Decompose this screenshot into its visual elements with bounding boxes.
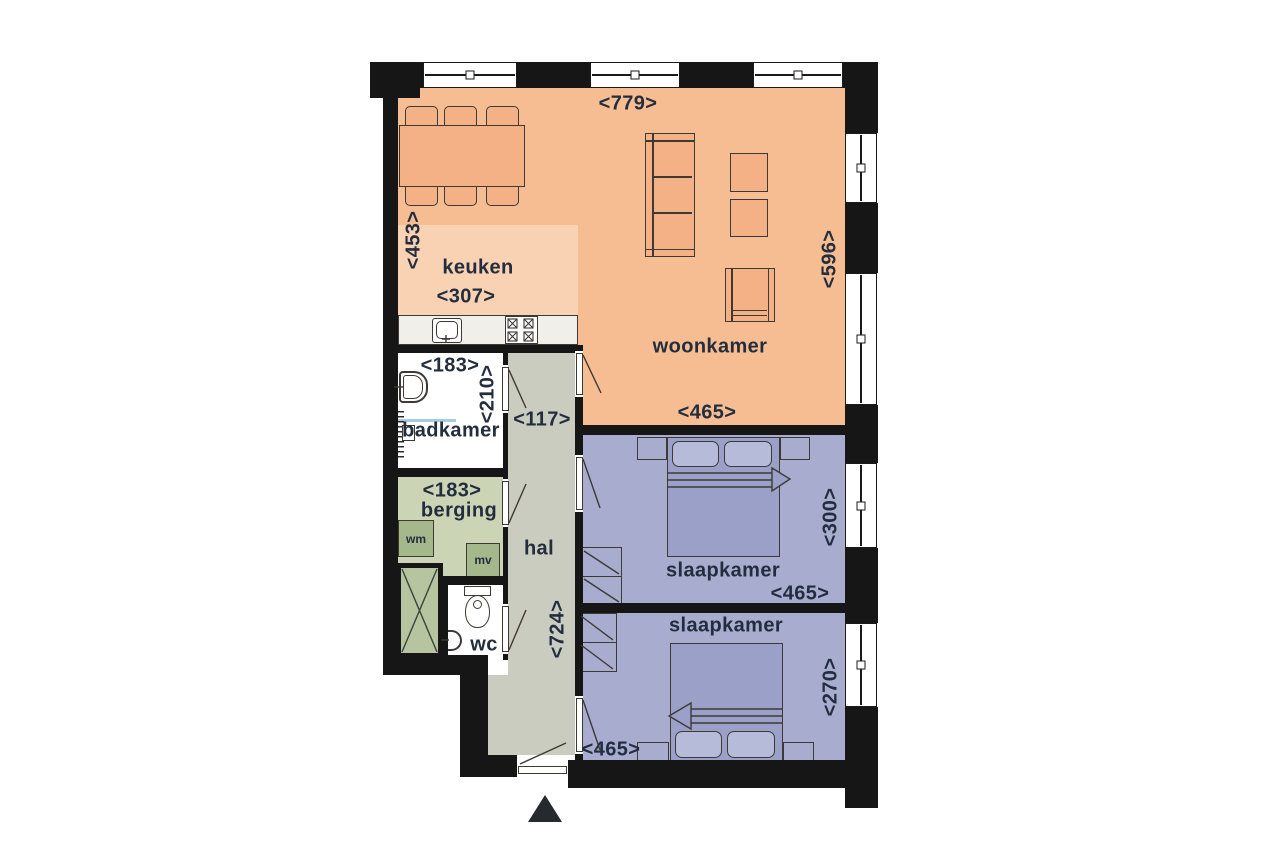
wall [575, 425, 845, 435]
room-label-keuken: keuken [442, 257, 513, 280]
wall [845, 405, 878, 463]
room-hal-lower [488, 675, 575, 755]
dim-hal-width: <117> [513, 409, 571, 432]
dim-woonkamer-inner-width: <465> [678, 402, 737, 425]
washing-machine: wm [398, 520, 434, 557]
window [590, 62, 680, 88]
stove [505, 316, 538, 344]
room-label-hal: hal [524, 538, 554, 561]
pillow [724, 441, 772, 467]
dim-woonkamer-width: <779> [599, 93, 658, 116]
pillow [672, 441, 719, 467]
washing-machine-label: wm [406, 532, 426, 546]
wall [460, 755, 517, 777]
mechanical-ventilation-label: mv [474, 553, 491, 567]
wall [398, 62, 425, 88]
door-leaf-slaapkamer-1 [576, 457, 583, 510]
window [845, 133, 877, 203]
floor-plan: wm mv [0, 0, 1280, 853]
door-leaf-woonkamer [576, 353, 583, 395]
shaft [396, 563, 443, 658]
wall [383, 88, 398, 675]
dim-slaapkamer-1-width: <465> [771, 583, 830, 606]
wall [438, 576, 503, 585]
side-table [730, 199, 768, 237]
room-label-slaapkamer-2: slaapkamer [669, 615, 783, 638]
toilet-flush [473, 600, 482, 609]
wall [568, 760, 845, 788]
wall [383, 345, 583, 353]
wall [845, 88, 878, 133]
door-leaf-berging [502, 481, 509, 525]
room-label-berging: berging [421, 500, 497, 523]
dim-slaapkamer-2-width: <465> [582, 739, 641, 762]
side-table [730, 153, 768, 192]
room-label-wc: wc [470, 634, 497, 657]
dining-table [399, 125, 525, 187]
dim-woonkamer-height: <596> [819, 230, 842, 289]
wall [843, 62, 878, 88]
wall [383, 468, 508, 477]
sofa [645, 133, 695, 257]
room-label-slaapkamer-1: slaapkamer [666, 560, 780, 583]
washbasin-inner [403, 375, 423, 399]
wall [845, 707, 878, 808]
dim-badkamer-width: <183> [421, 355, 480, 378]
door-leaf-badkamer [502, 367, 509, 411]
mechanical-ventilation: mv [466, 543, 500, 577]
pillow [675, 731, 722, 758]
room-label-woonkamer: woonkamer [653, 336, 768, 359]
window [423, 62, 517, 88]
wall [517, 62, 590, 88]
armchair [725, 268, 775, 322]
dim-keuken-width: <307> [437, 286, 496, 309]
dim-slaapkamer-1-height: <300> [820, 488, 843, 547]
wardrobe [580, 547, 622, 607]
window [845, 623, 877, 707]
dim-hal-height: <724> [547, 600, 570, 659]
entrance-threshold [518, 766, 567, 774]
pillow [727, 731, 775, 758]
entrance-arrow-icon [528, 795, 562, 822]
window [753, 62, 843, 88]
door-leaf-wc [502, 606, 509, 652]
window [845, 463, 877, 548]
room-label-badkamer: badkamer [402, 420, 500, 443]
wall [845, 203, 878, 273]
kitchen-counter [398, 315, 578, 345]
nightstand [780, 437, 810, 460]
kitchen-sink-basin [436, 321, 458, 339]
wall [845, 548, 878, 623]
wall [441, 585, 448, 660]
window [845, 273, 877, 405]
nightstand [637, 437, 667, 460]
dim-keuken-height: <453> [403, 211, 426, 270]
dim-badkamer-height: <210> [477, 365, 500, 424]
wall [680, 62, 753, 88]
dim-slaapkamer-2-height: <270> [820, 658, 843, 717]
wardrobe [578, 613, 617, 672]
